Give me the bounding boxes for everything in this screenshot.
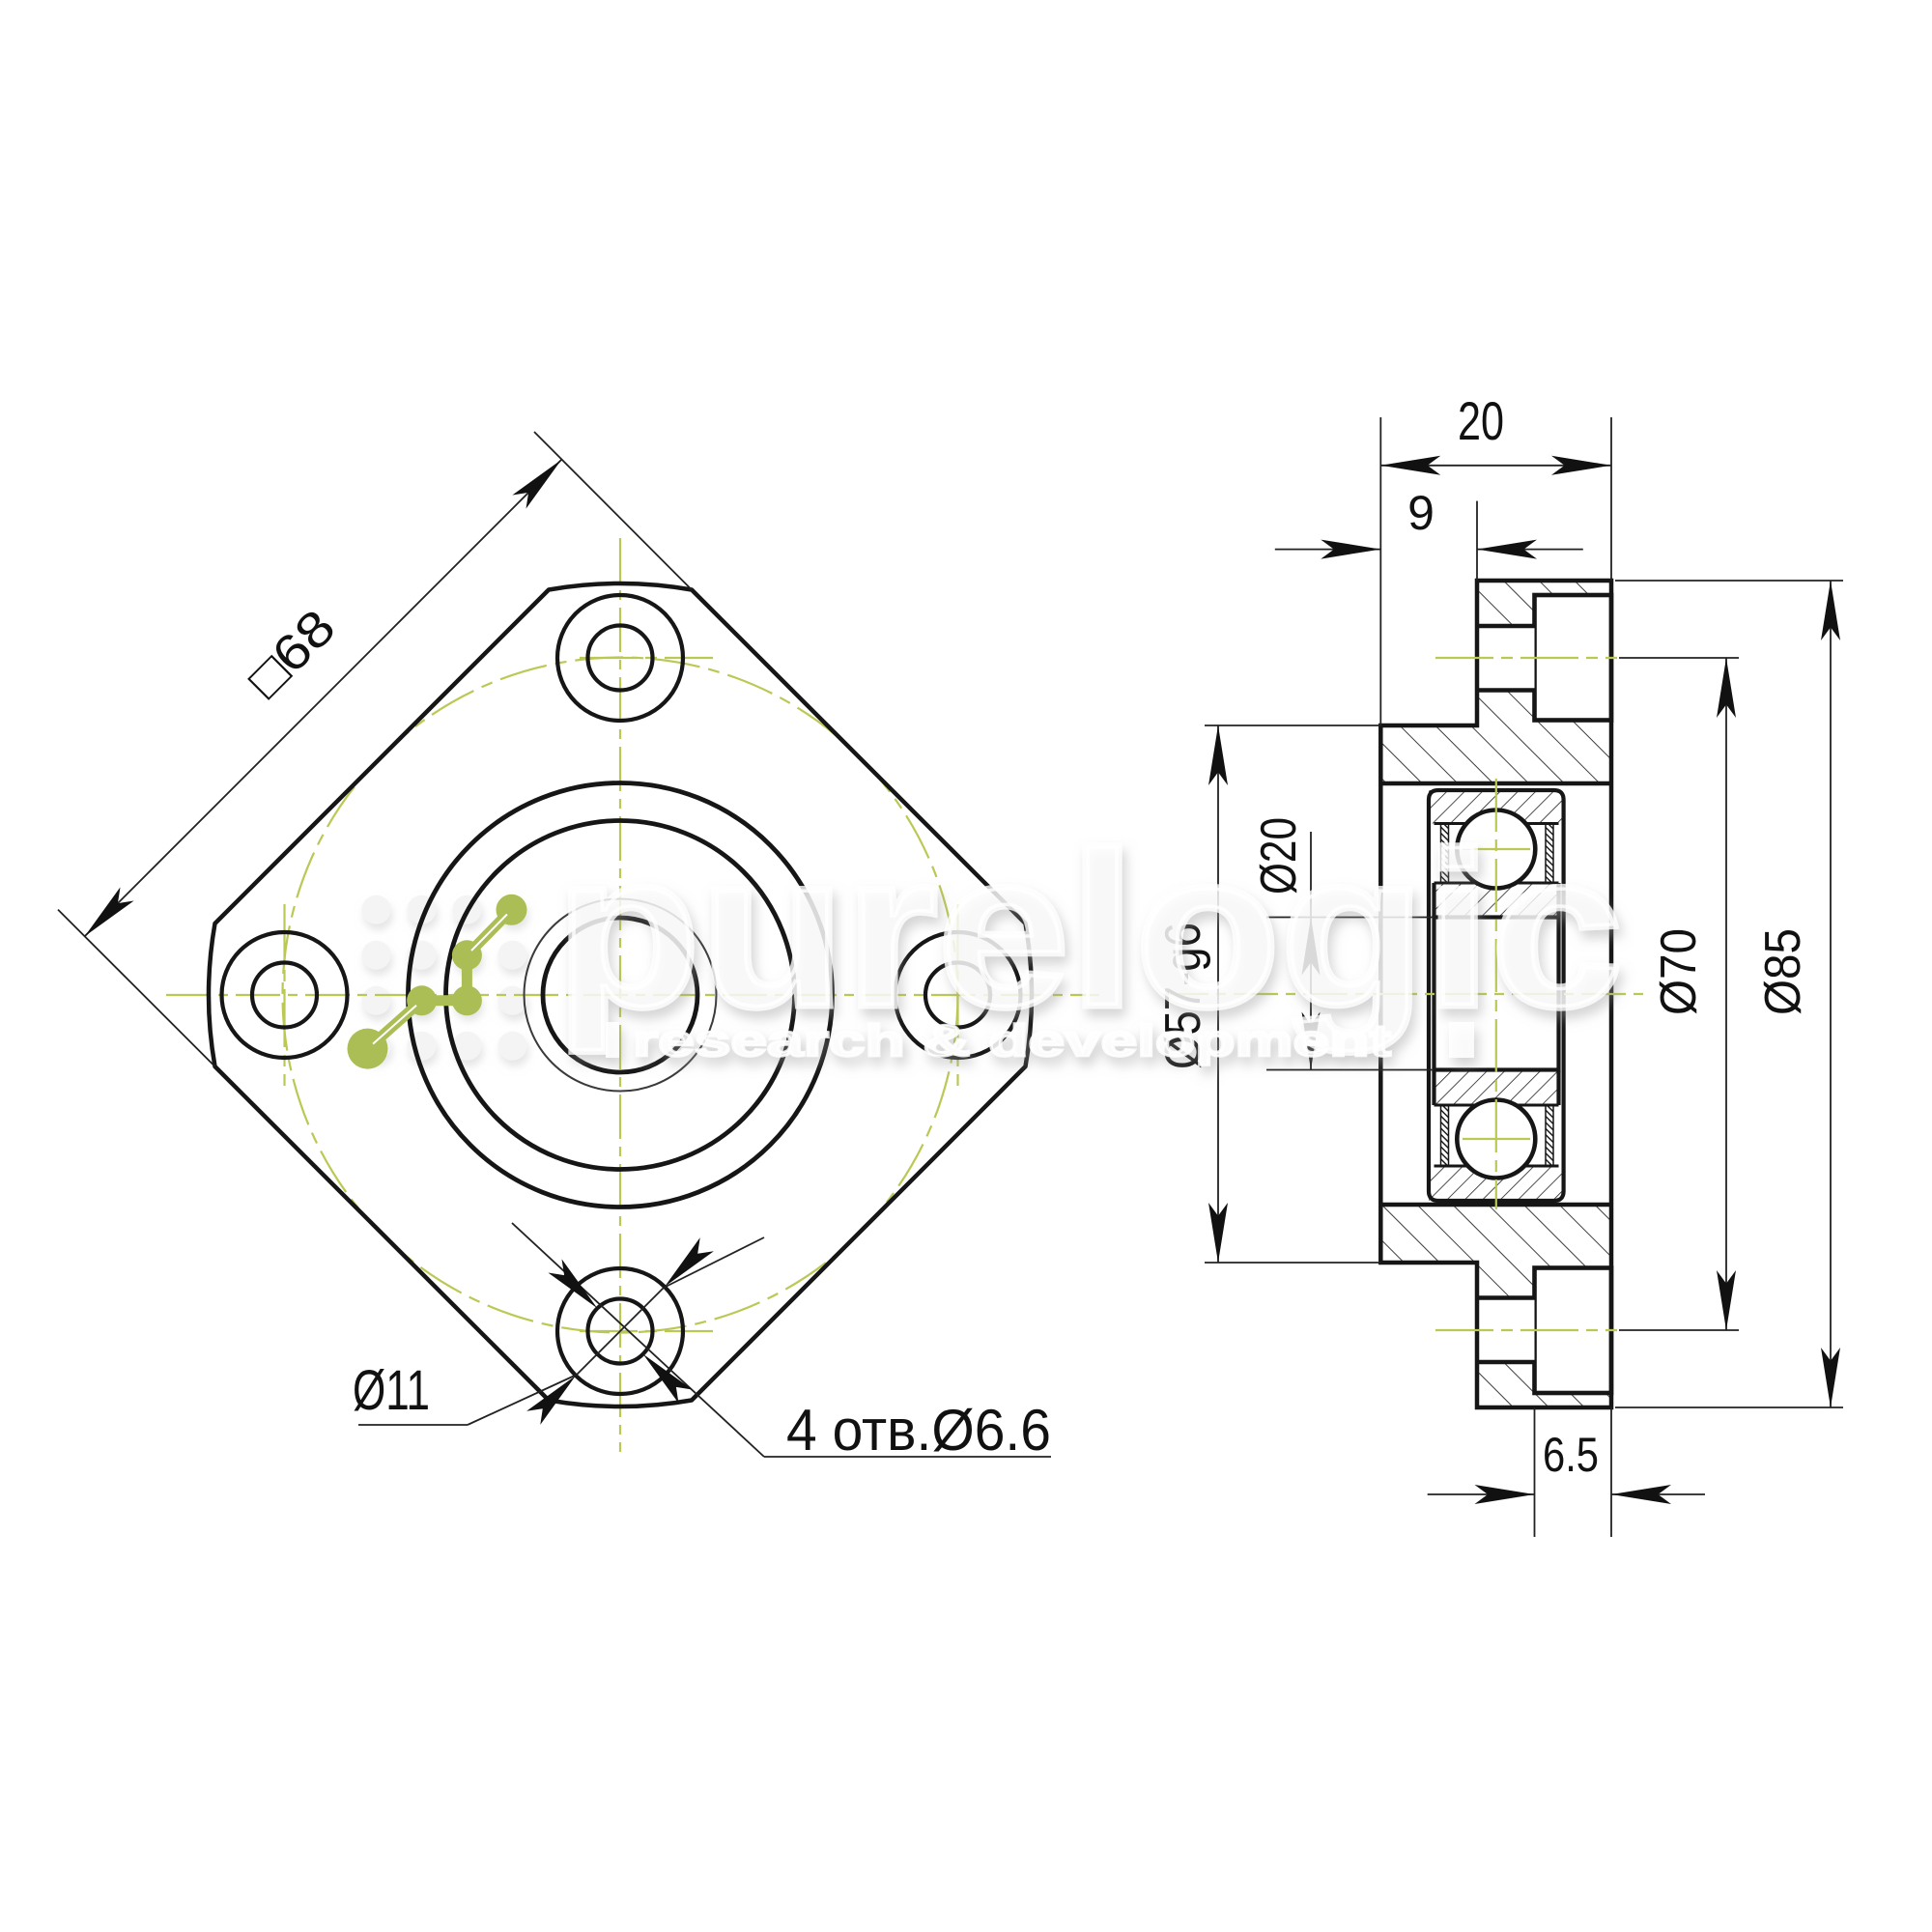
svg-text:4 отв.Ø6.6: 4 отв.Ø6.6 (786, 1398, 1051, 1463)
svg-text:20: 20 (1458, 390, 1504, 451)
svg-text:9: 9 (1407, 486, 1435, 540)
svg-text:6.5: 6.5 (1543, 1428, 1599, 1482)
svg-text:Ø85: Ø85 (1755, 928, 1811, 1015)
svg-text:Ø70: Ø70 (1651, 928, 1707, 1015)
svg-text:research & development: research & development (633, 1015, 1391, 1065)
svg-text:Ø11: Ø11 (353, 1359, 430, 1422)
